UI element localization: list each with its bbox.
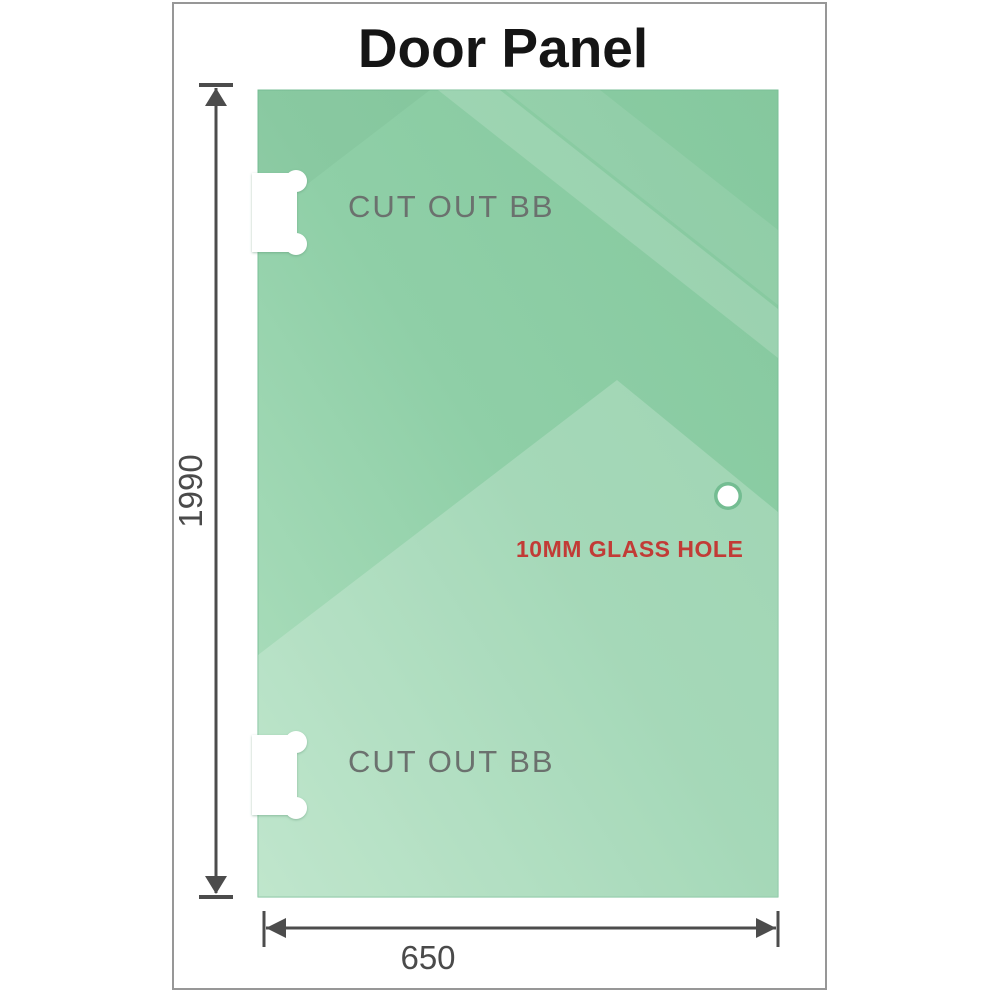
- glass-hole-label: 10MM GLASS HOLE: [516, 536, 776, 563]
- cutout-label-top: CUT OUT BB: [348, 189, 668, 225]
- diagram-title: Door Panel: [173, 16, 833, 80]
- cutout-label-bottom: CUT OUT BB: [348, 744, 668, 780]
- glass-hole: [714, 482, 742, 510]
- diagram-drawing: [0, 0, 1000, 1000]
- door-panel-diagram: Door Panel CUT OUT BB CUT OUT BB 10MM GL…: [0, 0, 1000, 1000]
- height-dimension-label: 1990: [171, 431, 211, 551]
- width-dimension-arrow: [264, 911, 778, 947]
- width-dimension-label: 650: [368, 938, 488, 978]
